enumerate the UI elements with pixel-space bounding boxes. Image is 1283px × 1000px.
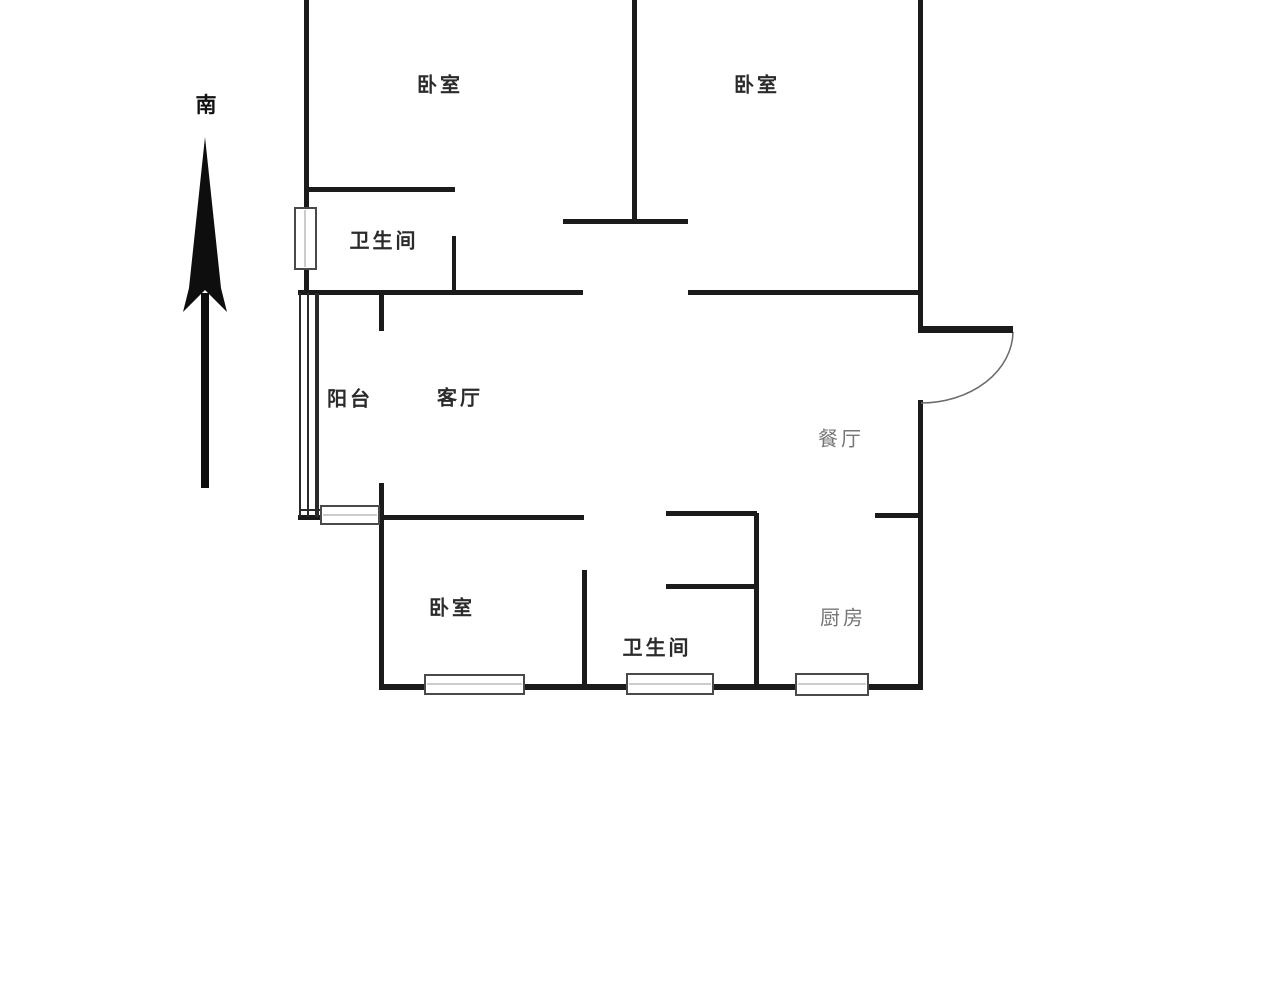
wall-bathroom-bottom-top xyxy=(666,584,757,589)
north-arrow-head xyxy=(183,137,227,312)
north-arrow-shaft xyxy=(201,293,209,488)
room-label-bathroom-top: 卫生间 xyxy=(350,225,419,254)
room-label-bedroom-top-left: 卧室 xyxy=(417,69,463,98)
wall-bathroom-bottom-right xyxy=(754,513,759,690)
compass-south-label: 南 xyxy=(196,89,217,119)
wall-exterior-left-upper xyxy=(304,0,309,208)
wall-balcony-bottom xyxy=(298,515,323,520)
room-label-bedroom-top-right: 卧室 xyxy=(734,69,780,98)
room-label-bathroom-bottom: 卫生间 xyxy=(623,632,692,661)
room-label-kitchen: 厨房 xyxy=(820,602,866,631)
walls xyxy=(298,0,923,690)
north-arrow-icon xyxy=(183,137,227,488)
wall-main-horizontal-left xyxy=(298,290,583,295)
wall-bedroom-bottom-right xyxy=(582,570,587,690)
wall-exterior-right-lower xyxy=(918,400,923,690)
floor-plan-drawing xyxy=(0,0,1283,1000)
floor-plan-canvas: 卧室 卧室 卫生间 阳台 客厅 餐厅 卧室 卫生间 厨房 南 xyxy=(0,0,1283,1000)
wall-bathroom-top-stub xyxy=(452,236,456,294)
wall-exterior-right-upper xyxy=(918,0,923,333)
balcony-glass-line-outer xyxy=(299,293,301,517)
wall-balcony-living-stub-top xyxy=(379,293,384,331)
balcony-glazing xyxy=(299,293,321,517)
balcony-glass-line-inner xyxy=(315,293,319,517)
wall-bathroom-top-upper xyxy=(304,187,455,192)
room-label-living-room: 客厅 xyxy=(437,382,483,411)
entry-door xyxy=(920,326,1013,403)
door-swing-arc xyxy=(921,332,1013,403)
wall-bedroom-bottom-top xyxy=(378,515,584,520)
room-label-balcony: 阳台 xyxy=(327,383,373,412)
wall-dining-bottom-left xyxy=(666,511,757,516)
wall-kitchen-top xyxy=(875,513,923,518)
balcony-glass-line-middle xyxy=(307,293,309,517)
wall-main-horizontal-right xyxy=(688,290,922,295)
wall-corridor-tbar xyxy=(563,219,688,224)
room-label-bedroom-bottom: 卧室 xyxy=(429,592,475,621)
door-leaf xyxy=(920,326,1013,333)
wall-bedroom-divider-top xyxy=(632,0,637,223)
room-label-dining-room: 餐厅 xyxy=(818,423,864,452)
balcony-glass-line-bottom xyxy=(299,509,321,511)
